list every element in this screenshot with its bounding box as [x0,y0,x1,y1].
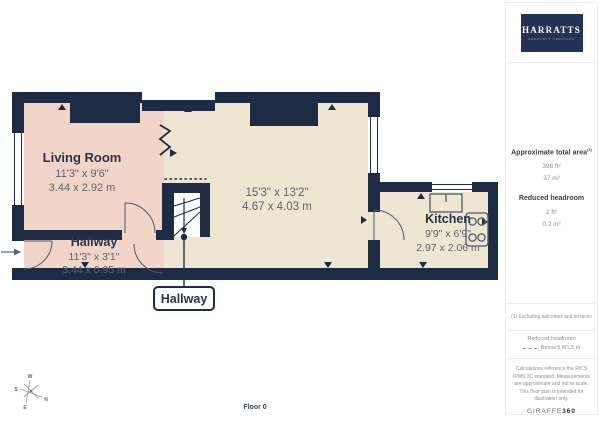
window-left [12,133,24,205]
headroom-value-metric: 0.2 m² [506,219,597,231]
window-right [368,117,380,173]
hallway-dims-metric: 3.44 x 0.95 m [62,264,126,276]
brand-tagline: PROPERTY SERVICES [528,37,575,41]
hallway-callout-label: Hallway [161,292,208,306]
legend-title: Reduced headroom [506,336,597,342]
area-title: Approximate total area(1) [506,147,597,156]
compass-s: S [14,387,18,393]
kitchen-dims-metric: 2.97 x 2.06 m [416,242,480,254]
area-value-metric: 37 m² [506,173,597,185]
legend-panel: Reduced headroom Below 5 ft/1.5 m [506,331,597,359]
hallway-dims-imperial: 11'3" x 3'1" [69,251,120,263]
legend-label: Below 5 ft/1.5 m [541,345,580,351]
kitchen-name: Kitchen [425,212,471,226]
compass-e: E [23,405,27,411]
watermark-name: GIRAFFE [527,408,562,415]
compass-n: N [44,397,48,403]
footnote: (1) Excluding balconies and terraces [506,304,597,331]
area-title-text: Approximate total area [511,149,587,156]
hallway-name: Hallway [71,235,118,249]
reception-dims-imperial: 15'3" x 13'2" [245,187,308,199]
window-kitchen [432,182,472,192]
headroom-title: Reduced headroom [506,195,597,202]
reception-dims-metric: 4.67 x 4.03 m [242,201,312,213]
area-footnote-ref: (1) [587,147,592,152]
living-room-dims-imperial: 11'3" x 9'6" [55,168,108,180]
compass-icon: W S N E [14,374,48,411]
watermark-suffix: 360 [562,408,576,415]
compass-w: W [28,374,33,380]
brand-name: HARRATTS [522,25,581,35]
brand-panel: HARRATTS PROPERTY SERVICES [506,3,597,63]
disclaimer-panel: Calculations reference the RICS IPMS 3C … [506,359,597,415]
legend-row: Below 5 ft/1.5 m [506,345,597,351]
harratts-logo: HARRATTS PROPERTY SERVICES [521,14,583,52]
entrance-arrow-icon [1,249,21,256]
floorplan-page: Living Room 11'3" x 9'6" 3.44 x 2.92 m 1… [0,0,600,424]
living-room-dims-metric: 3.44 x 2.92 m [49,182,116,194]
headroom-value-imperial: 2 ft² [506,207,597,219]
floor-plan: Living Room 11'3" x 9'6" 3.44 x 2.92 m 1… [0,0,505,424]
disclaimer-text: Calculations reference the RICS IPMS 3C … [513,366,590,404]
giraffe360-watermark: GIRAFFE360 [513,408,590,416]
kitchen-dims-imperial: 9'9" x 6'9" [425,228,471,240]
info-panel: HARRATTS PROPERTY SERVICES Approximate t… [505,2,598,415]
dashed-line-icon [523,348,537,349]
stairs-icon [174,193,200,240]
area-value-imperial: 398 ft² [506,161,597,173]
floor-label: Floor 0 [243,404,266,411]
living-room-name: Living Room [43,150,122,165]
area-summary-panel: Approximate total area(1) 398 ft² 37 m² … [506,63,597,304]
